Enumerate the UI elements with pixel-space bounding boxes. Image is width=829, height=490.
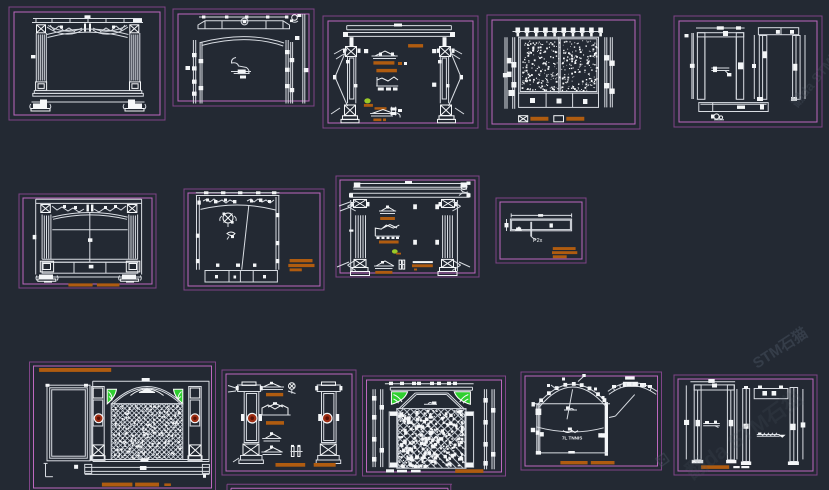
svg-text:7L TNNIS: 7L TNNIS [562,436,582,441]
svg-text:P2x: P2x [533,238,543,244]
